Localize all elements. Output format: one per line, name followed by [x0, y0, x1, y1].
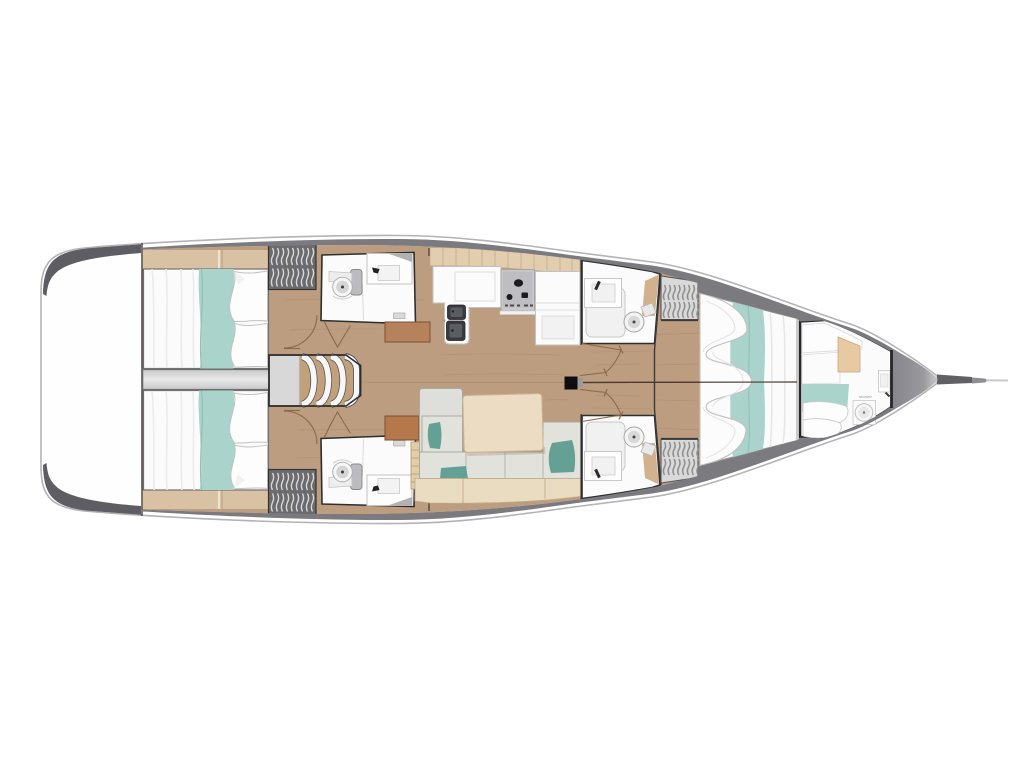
svg-text:shower: shower — [859, 394, 873, 399]
